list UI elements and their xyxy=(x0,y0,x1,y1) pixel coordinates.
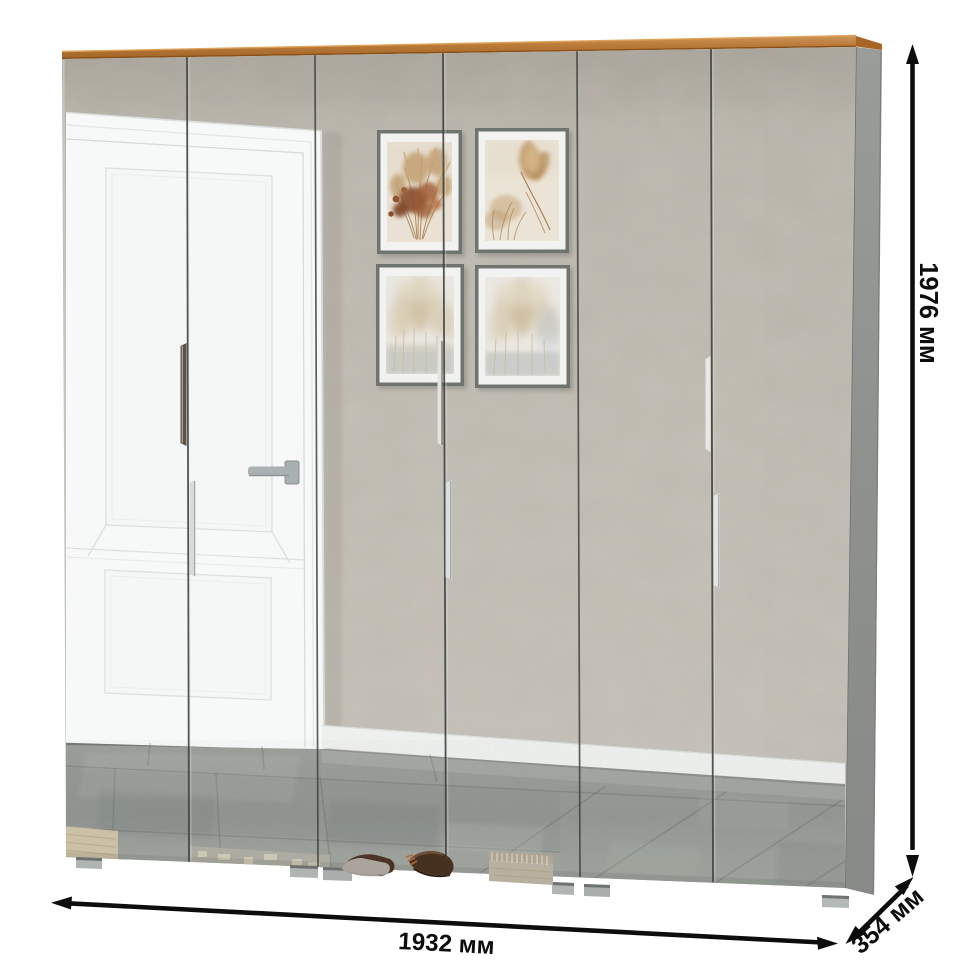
svg-text:1932 мм: 1932 мм xyxy=(398,928,496,960)
svg-text:354 мм: 354 мм xyxy=(846,882,929,959)
svg-text:1976 мм: 1976 мм xyxy=(914,262,942,364)
